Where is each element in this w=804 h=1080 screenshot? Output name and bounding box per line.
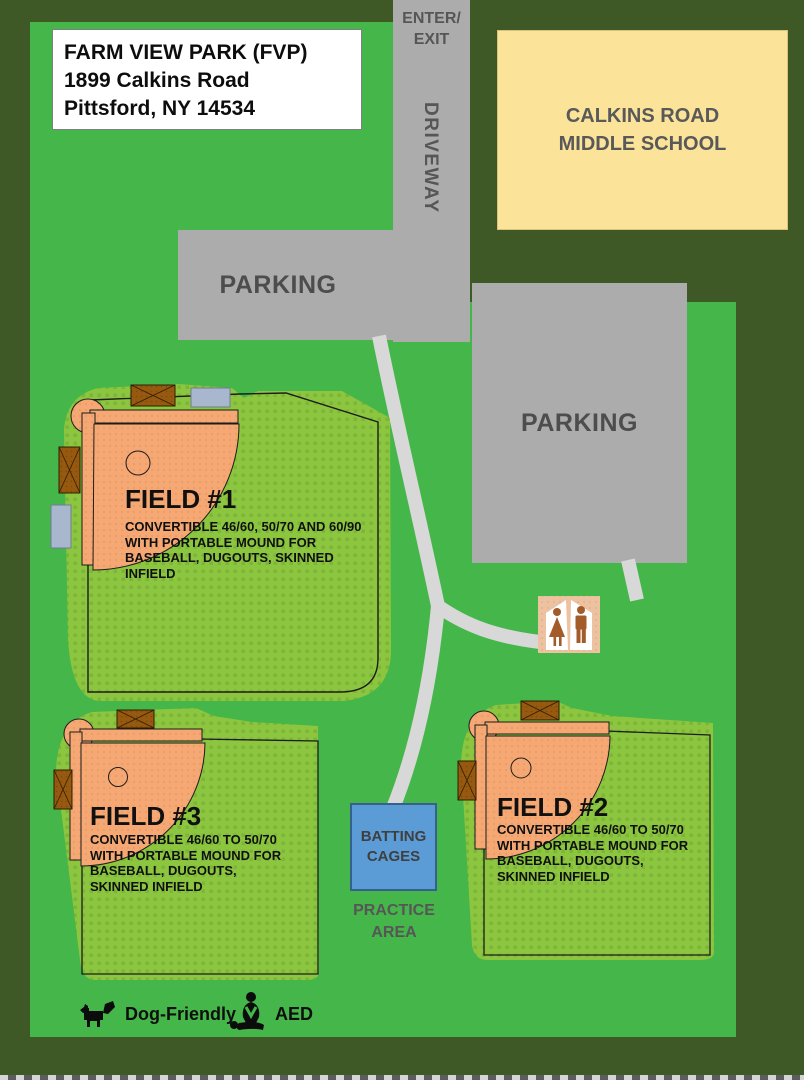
park-name: FARM VIEW PARK (FVP) [64, 39, 350, 67]
parking-upper-label: PARKING [178, 230, 378, 340]
dog-friendly-label: Dog-Friendly [125, 1004, 236, 1025]
field-2-description: CONVERTIBLE 46/60 TO 50/70 WITH PORTABLE… [497, 822, 697, 884]
restroom-icon [538, 596, 600, 653]
field-3-name: FIELD #3 [90, 801, 201, 832]
aed-label: AED [275, 1004, 313, 1025]
field-1-dugout-left [59, 447, 80, 493]
dog-icon [78, 1000, 116, 1028]
field-3-description: CONVERTIBLE 46/60 TO 50/70 WITH PORTABLE… [90, 832, 290, 894]
field-2-foul-strip-top [485, 722, 609, 734]
field-2-dugout-top [521, 701, 559, 720]
school-building: CALKINS ROAD MIDDLE SCHOOL [497, 30, 788, 230]
park-map: FARM VIEW PARK (FVP) 1899 Calkins Road P… [0, 0, 804, 1080]
park-title-box: FARM VIEW PARK (FVP) 1899 Calkins Road P… [52, 29, 362, 130]
field-1-foul-strip-top [90, 410, 238, 423]
field-1-bleacher-left [51, 505, 71, 548]
field-2-name: FIELD #2 [497, 792, 608, 823]
park-city: Pittsford, NY 14534 [64, 95, 350, 123]
field-2-dugout-left [458, 761, 476, 800]
aed-cpr-icon [230, 992, 266, 1036]
field-3-foul-strip-top [80, 729, 202, 741]
field-1-dugout-top [131, 385, 175, 406]
field-3-dugout-left [54, 770, 72, 809]
legend-dog-friendly: Dog-Friendly [78, 1000, 236, 1028]
field-3-dugout-top [117, 710, 154, 728]
field-1-description: CONVERTIBLE 46/60, 50/70 AND 60/90 WITH … [125, 519, 370, 581]
enter-exit-label: ENTER/ EXIT [393, 8, 470, 50]
park-address: 1899 Calkins Road [64, 67, 350, 95]
practice-area-label: PRACTICE AREA [338, 900, 450, 944]
slide-bottom-edge [0, 1075, 804, 1080]
legend-aed: AED [230, 992, 313, 1036]
batting-cages: BATTING CAGES [350, 803, 437, 891]
field-1-bleacher-top [191, 388, 230, 407]
parking-lower-label: PARKING [472, 283, 687, 563]
driveway-label: DRIVEWAY [419, 102, 441, 262]
field-1-name: FIELD #1 [125, 484, 236, 515]
field-2-foul-strip-left [475, 725, 487, 849]
